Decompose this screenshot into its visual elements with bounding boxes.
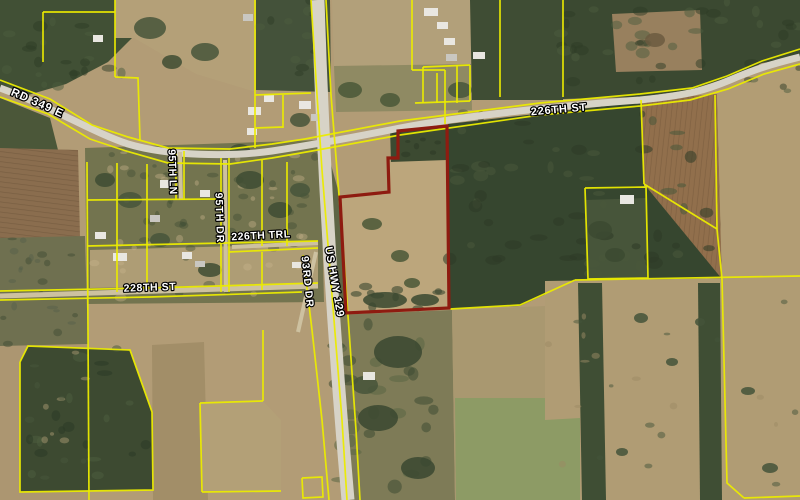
building	[446, 54, 457, 61]
building	[243, 14, 253, 21]
building	[150, 215, 160, 222]
building	[195, 261, 205, 267]
building	[200, 190, 210, 197]
building	[264, 95, 274, 102]
building	[363, 372, 375, 380]
road-label-228th-st: 228TH ST	[123, 281, 176, 295]
building	[182, 252, 192, 259]
building	[299, 101, 311, 109]
building	[95, 232, 106, 239]
building	[93, 35, 103, 42]
aerial-map-container[interactable]: COUNTY RD 349 E226TH ST95TH LN95TH DR226…	[0, 0, 800, 500]
road-label-95th-dr: 95TH DR	[212, 192, 226, 243]
parcel-boundary	[255, 127, 283, 128]
aerial-map[interactable]: COUNTY RD 349 E226TH ST95TH LN95TH DR226…	[0, 0, 800, 500]
road-95th-ln	[180, 152, 181, 200]
building	[444, 38, 455, 45]
parcel-boundary	[87, 199, 221, 200]
road-label-95th-ln: 95TH LN	[165, 149, 179, 195]
building	[437, 22, 448, 29]
building	[113, 253, 127, 261]
building	[473, 52, 485, 59]
parcel-boundary	[202, 491, 281, 492]
building	[620, 195, 634, 204]
building	[424, 8, 438, 16]
